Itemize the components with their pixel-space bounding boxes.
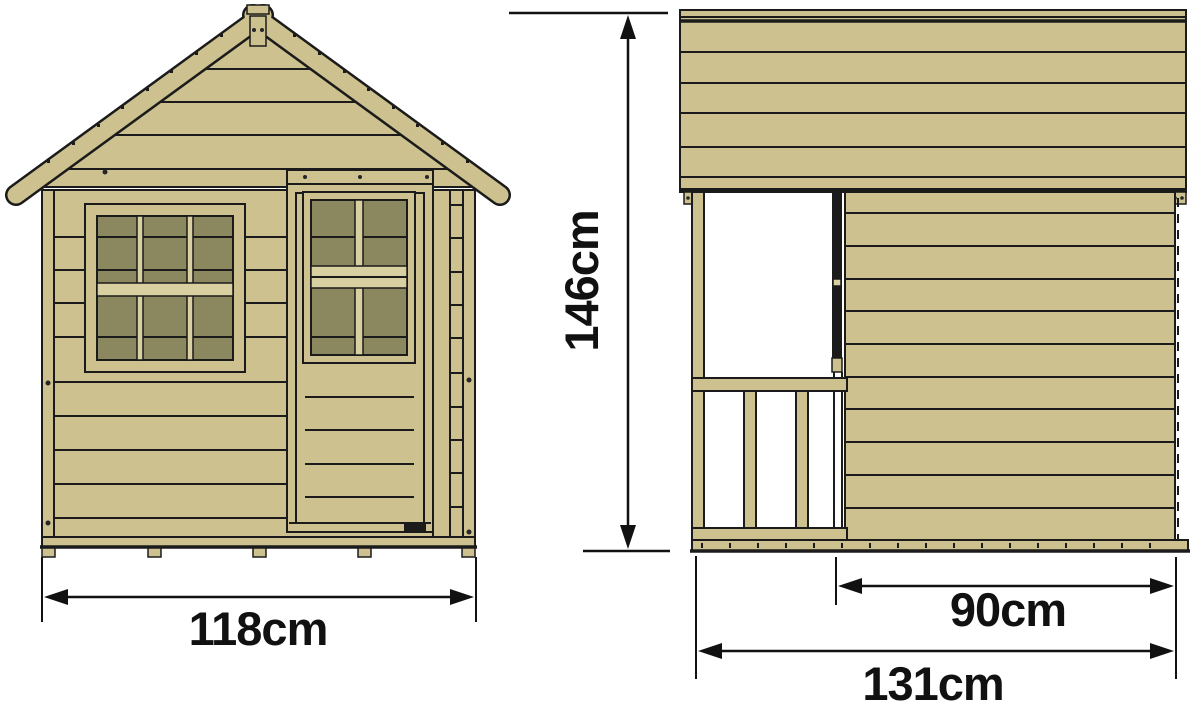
ridge-cap [247,5,269,14]
railing-baluster [744,391,756,528]
body-depth-label: 90cm [950,583,1066,636]
door-edge-block [832,358,842,372]
porch-post [692,192,704,542]
dimension-height: 146cm [509,13,670,551]
front-elevation: 118cm [16,5,500,655]
front-door [287,170,433,532]
side-wall [845,192,1175,540]
side-elevation: 146cm 90cm 131cm [509,10,1190,710]
front-window [85,204,245,372]
porch [692,192,847,542]
right-corner-trim [463,190,475,537]
side-roof [680,10,1186,192]
window-muntin-horizontal [97,283,233,296]
dimension-total-depth: 131cm [696,556,1176,710]
railing-top-rail [692,378,847,391]
left-corner-trim [42,190,54,537]
height-label: 146cm [555,210,608,351]
front-width-label: 118cm [189,602,328,655]
door-threshold [404,523,426,531]
side-roof-panel [680,10,1186,192]
railing-bottom-rail [692,528,847,540]
dimension-body-depth: 90cm [836,557,1174,636]
door-opening-shadow [832,192,842,358]
front-feet [42,548,475,557]
side-floor [690,540,1190,551]
dimension-front-width: 118cm [42,557,476,655]
door-side-board [433,190,450,537]
total-depth-label: 131cm [862,657,1003,710]
playhouse-dimension-diagram: 118cm [0,0,1200,712]
diagram-canvas: 118cm [0,0,1200,712]
railing-baluster [796,391,808,528]
hinge-mark [833,279,841,286]
